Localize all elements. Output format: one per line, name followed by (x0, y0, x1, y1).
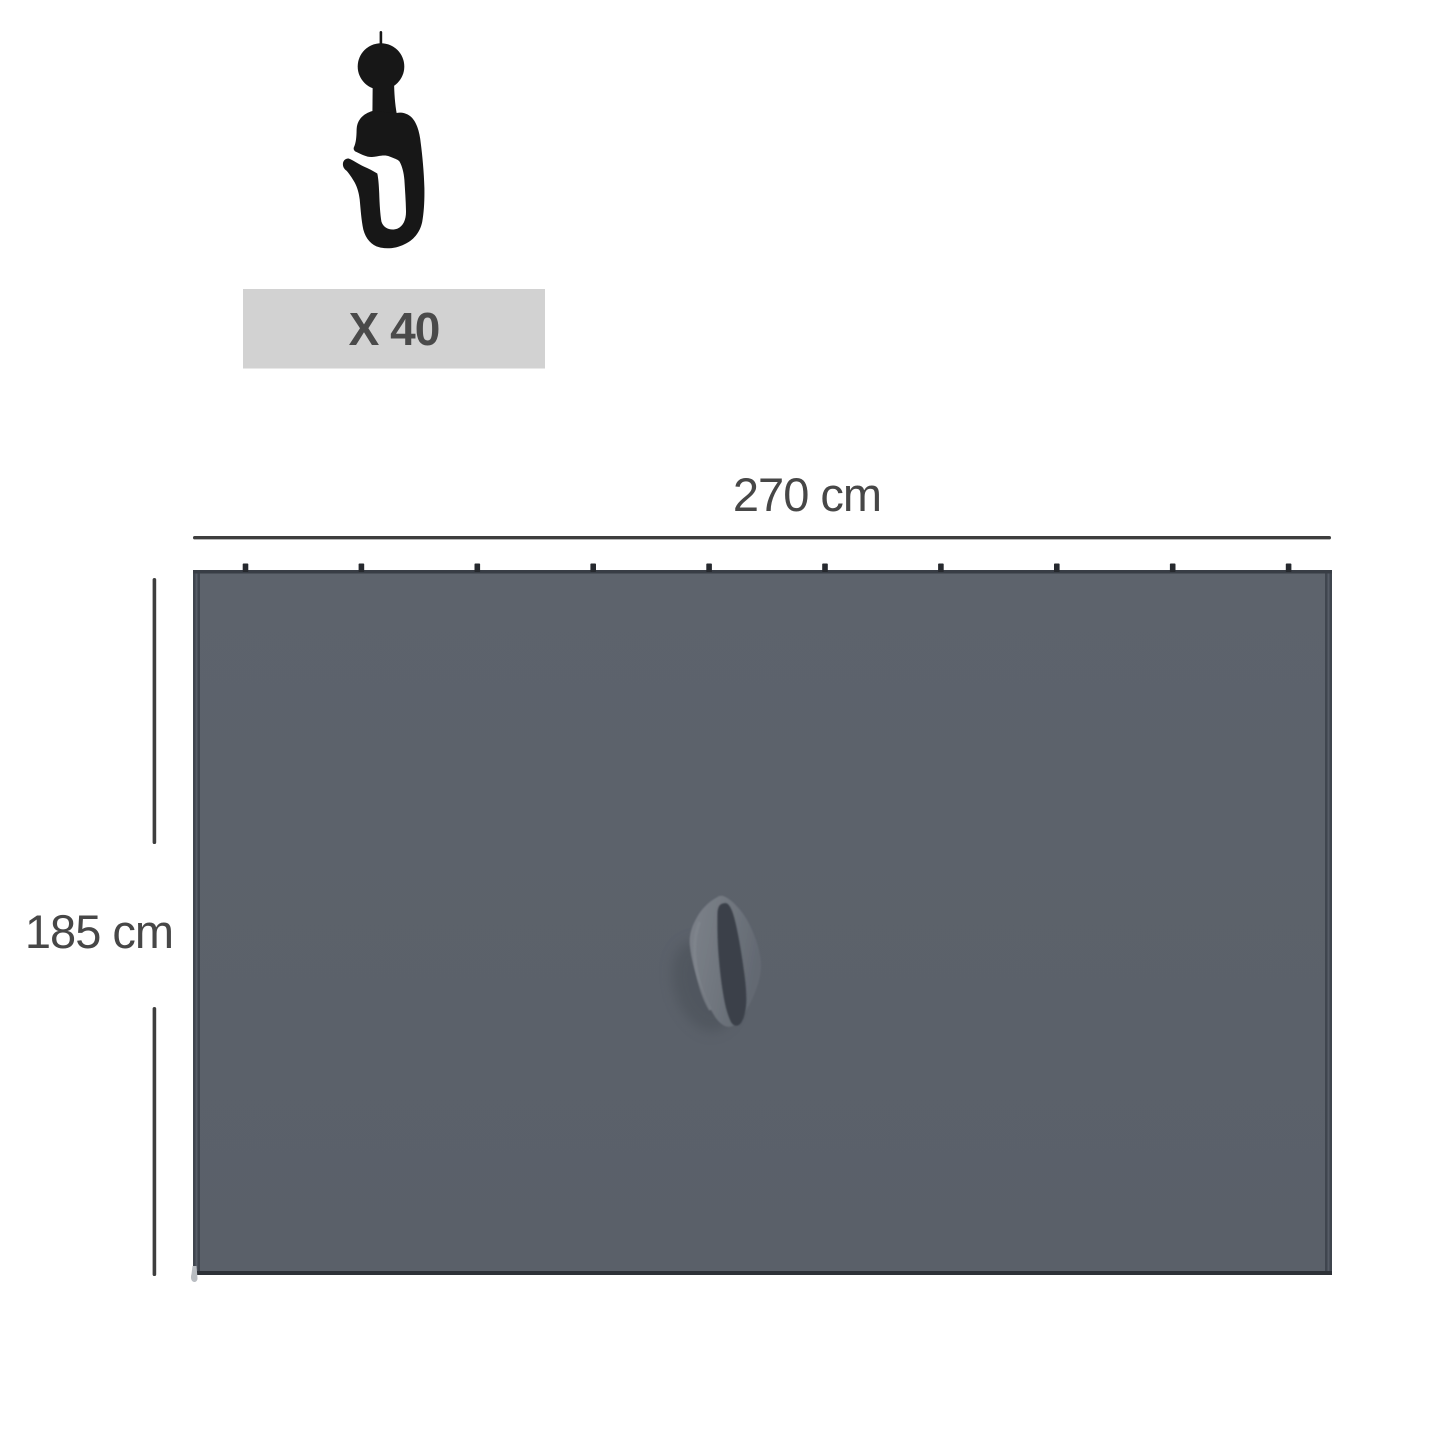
svg-text:X 40: X 40 (349, 303, 440, 355)
svg-text:185 cm: 185 cm (25, 905, 173, 958)
svg-text:270 cm: 270 cm (733, 468, 881, 521)
